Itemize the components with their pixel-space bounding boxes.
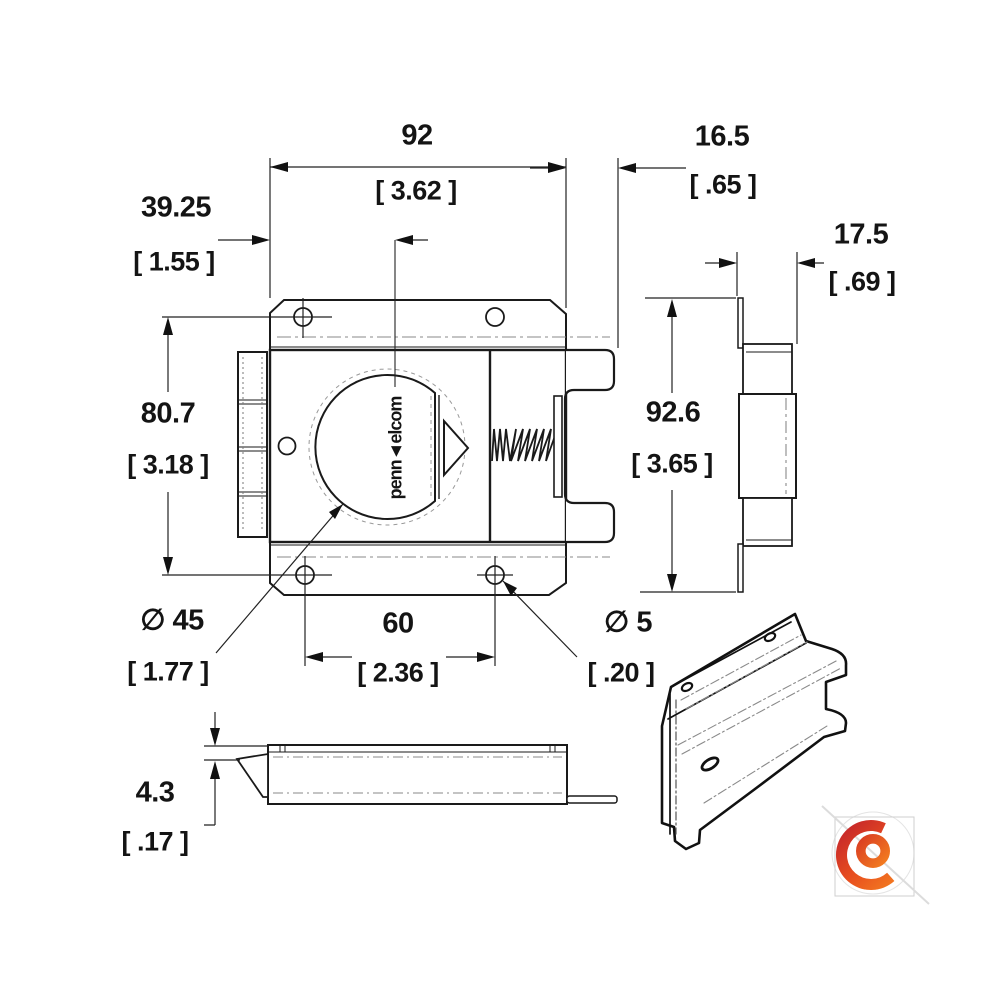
dim-side-depth-mm: 17.5 bbox=[834, 219, 888, 252]
dim-dial-diameter-in: [ 1.77 ] bbox=[127, 657, 209, 688]
dim-bolt-extension-in: [ .65 ] bbox=[689, 170, 756, 201]
isometric-outline bbox=[662, 614, 846, 849]
dim-side-height-in: [ 3.65 ] bbox=[631, 449, 713, 480]
dim-hole-span-h-in: [ 2.36 ] bbox=[357, 658, 439, 689]
bottom-mounting-flange bbox=[270, 542, 566, 595]
bottom-view-bolt-tail bbox=[567, 796, 617, 803]
penn-elcom-logo-icon bbox=[822, 806, 929, 904]
dim-plate-width-in: [ 3.62 ] bbox=[375, 176, 457, 207]
dim-plate-thickness-mm: 4.3 bbox=[136, 777, 175, 810]
side-top-flange bbox=[738, 298, 743, 348]
bottom-view-hook bbox=[237, 754, 268, 797]
dim-hole-span-h-mm: 60 bbox=[382, 608, 413, 641]
dim-hole-span-v-mm: 80.7 bbox=[141, 398, 195, 431]
dim-side-depth-in: [ .69 ] bbox=[828, 267, 895, 298]
dim-plate-width-mm: 92 bbox=[401, 120, 432, 153]
logo-inner-ring bbox=[861, 839, 885, 863]
dim-side-height-mm: 92.6 bbox=[646, 397, 700, 430]
bottom-view bbox=[237, 745, 617, 804]
side-middle-body bbox=[739, 394, 796, 498]
dim-bolt-extension-mm: 16.5 bbox=[695, 121, 749, 154]
side-bottom-block bbox=[743, 498, 792, 546]
bottom-view-bar bbox=[268, 745, 567, 804]
dim-plate-thickness-in: [ .17 ] bbox=[121, 827, 188, 858]
dim-hole-diameter-in: [ .20 ] bbox=[587, 658, 654, 689]
dim-hole-diameter-mm: ∅ 5 bbox=[604, 605, 652, 640]
bolt-guide-bar bbox=[554, 396, 562, 497]
dial-brand-label: penn◄elcom bbox=[386, 397, 407, 500]
dim-hole-span-v-in: [ 3.18 ] bbox=[127, 450, 209, 481]
ratchet-strip bbox=[238, 352, 267, 537]
dim-dial-offset-mm: 39.25 bbox=[141, 192, 211, 225]
front-view bbox=[238, 300, 614, 595]
side-view bbox=[738, 298, 796, 592]
latch-bolt-fork bbox=[565, 350, 614, 542]
top-mounting-flange bbox=[270, 300, 566, 350]
isometric-view bbox=[662, 614, 846, 849]
dim-dial-diameter-mm: ∅ 45 bbox=[140, 603, 204, 638]
side-bottom-flange bbox=[738, 544, 743, 592]
drawing-page: 92 [ 3.62 ] 16.5 [ .65 ] 39.25 [ 1.55 ] … bbox=[0, 0, 1000, 1000]
dim-dial-offset-in: [ 1.55 ] bbox=[133, 247, 215, 278]
